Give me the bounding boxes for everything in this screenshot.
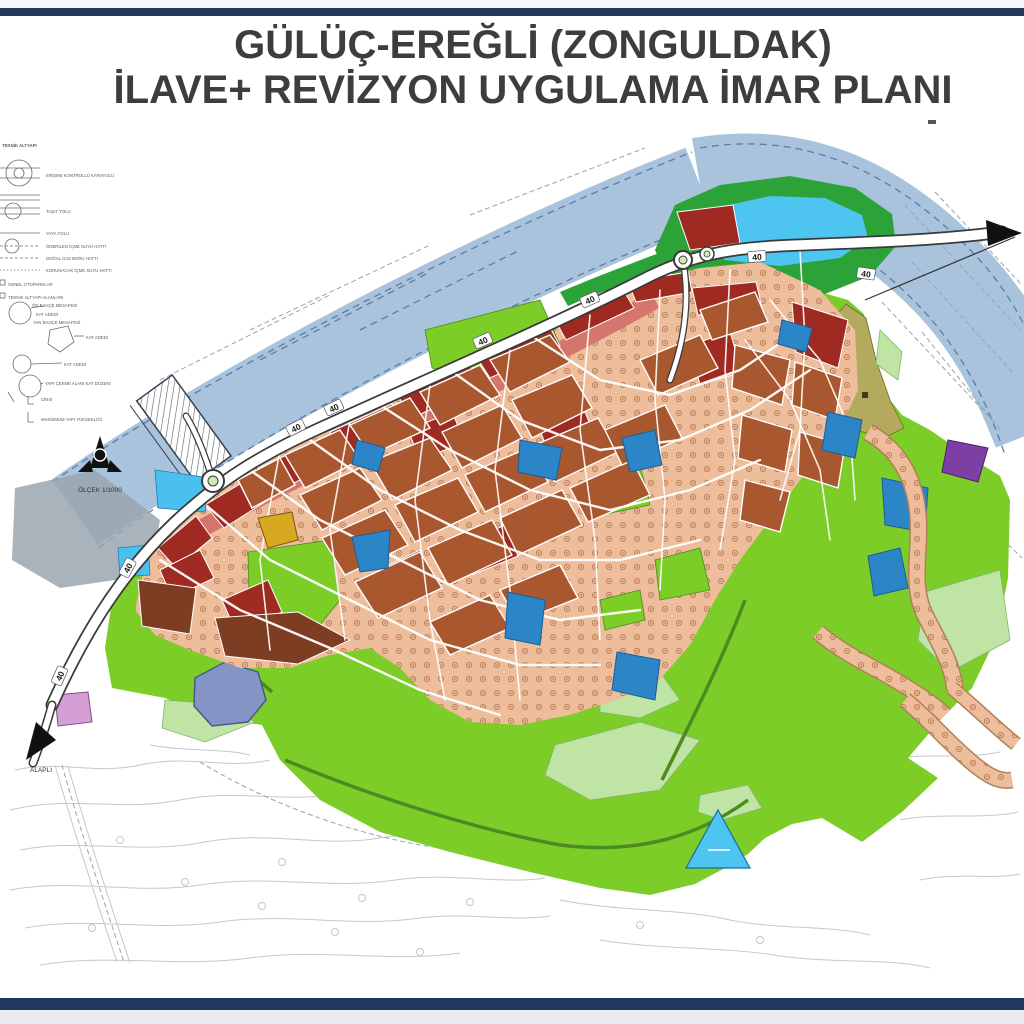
legend-item-label: YAYA YOLU bbox=[46, 231, 69, 236]
page-border-top bbox=[0, 8, 1024, 16]
top-margin-strip bbox=[0, 0, 1024, 8]
legend-header: TEKNİK ALTYAPI bbox=[2, 143, 37, 148]
svg-text:40: 40 bbox=[752, 252, 762, 263]
road-width-label: 40 bbox=[748, 250, 767, 262]
legend-item-label: ÖN BAHÇE MESAFESİ bbox=[32, 303, 77, 308]
road-width-label: 40 bbox=[856, 267, 875, 280]
legend-item-label: KAT ADEDİ bbox=[36, 312, 58, 317]
svg-text:40: 40 bbox=[861, 268, 872, 279]
legend-item-label: YAPI ÇEKME ALANI KAT DÜZENİ bbox=[45, 381, 111, 386]
tick-mark bbox=[928, 120, 936, 124]
legend-item-label: KAT ADEDİ bbox=[64, 362, 86, 367]
legend-item-label: DOĞAL GAZ BORU HATTI bbox=[46, 256, 98, 261]
plan-sheet: ALAPLI 40 40 40 40 40 40 40 40 TEKNİK AL… bbox=[0, 0, 1024, 1024]
legend-item-label: GENEL OTOPARKLAR bbox=[8, 282, 53, 287]
legend-item-label: KAT ADEDİ bbox=[86, 335, 108, 340]
legend-item-label: TEKNİK ALTYAPI ALANLARI bbox=[8, 295, 63, 300]
page-border-bottom bbox=[0, 998, 1024, 1010]
title-line-2: İLAVE+ REVİZYON UYGULAMA İMAR PLANI bbox=[114, 68, 953, 112]
legend-item-label: ERİŞME KONTROLLÜ KARAYOLU bbox=[46, 173, 114, 178]
legend-item-label: TAŞIT YOLU bbox=[46, 209, 71, 214]
legend-item-label: CİNSİ bbox=[41, 397, 52, 402]
scale-label: ÖLÇEK 1/1000 bbox=[78, 486, 122, 494]
map-canvas: ALAPLI 40 40 40 40 40 40 40 40 TEKNİK AL… bbox=[0, 0, 1024, 1024]
legend-item-label: KORUNACAK İÇME SUYU HATTI bbox=[46, 268, 112, 273]
legend-item-label: ÖNERİLEN İÇME SUYU HATTI bbox=[46, 244, 106, 249]
legend-item-label: YAN BAHÇE MESAFESİ bbox=[33, 320, 80, 325]
legend-item-label: MAKSİMUM YAPI YÜKSEKLİĞİ bbox=[41, 417, 102, 422]
bottom-margin-strip bbox=[0, 1010, 1024, 1024]
map-title: GÜLÜÇ-EREĞLİ (ZONGULDAK) İLAVE+ REVİZYON… bbox=[114, 21, 953, 112]
title-line-1: GÜLÜÇ-EREĞLİ (ZONGULDAK) bbox=[234, 21, 832, 67]
alapli-label: ALAPLI bbox=[30, 767, 52, 774]
